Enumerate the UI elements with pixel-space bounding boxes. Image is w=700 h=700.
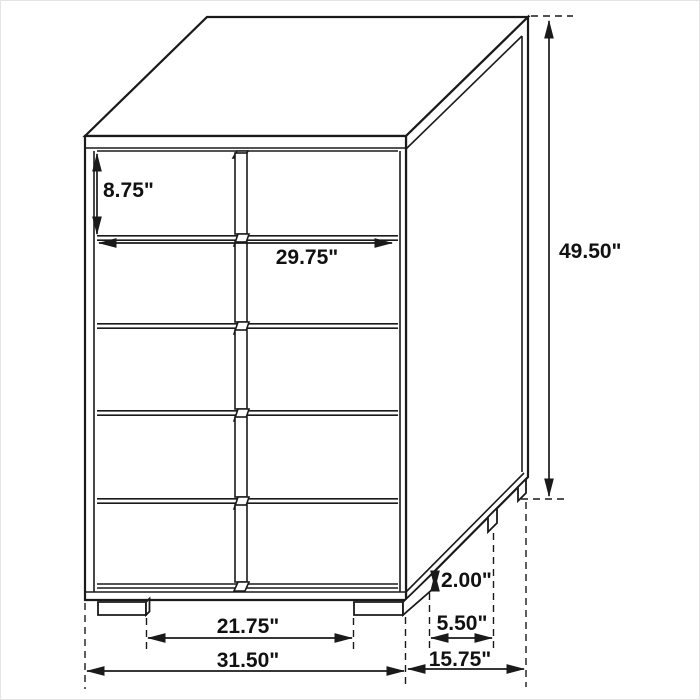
dim-front-leg-spacing-label: 21.75" — [217, 615, 280, 638]
dim-front-leg-spacing: 21.75" — [148, 615, 352, 638]
chest-front-face — [85, 136, 406, 600]
drawer-handle-bars — [233, 151, 249, 591]
diagram-svg: 8.75" 29.75" 49.50" 2.00" 5.50" 21.75" 3… — [1, 1, 700, 700]
dim-side-leg-spacing: 5.50" — [431, 612, 492, 638]
dim-overall-height: 49.50" — [549, 21, 622, 496]
dim-drawer-width-label: 29.75" — [276, 246, 339, 269]
furniture-dimension-diagram: 8.75" 29.75" 49.50" 2.00" 5.50" 21.75" 3… — [0, 0, 700, 700]
dim-side-leg-spacing-label: 5.50" — [437, 612, 488, 635]
front-left-foot — [98, 602, 146, 615]
dim-overall-depth: 15.75" — [408, 648, 524, 671]
dim-overall-depth-label: 15.75" — [429, 648, 492, 671]
dim-leg-height: 2.00" — [435, 569, 492, 592]
front-right-foot — [354, 602, 403, 615]
dim-drawer-height-label: 8.75" — [103, 179, 154, 202]
dim-overall-width-label: 31.50" — [217, 649, 280, 672]
dim-overall-height-label: 49.50" — [559, 240, 622, 263]
dim-leg-height-label: 2.00" — [441, 569, 492, 592]
dim-overall-width: 31.50" — [87, 649, 404, 672]
